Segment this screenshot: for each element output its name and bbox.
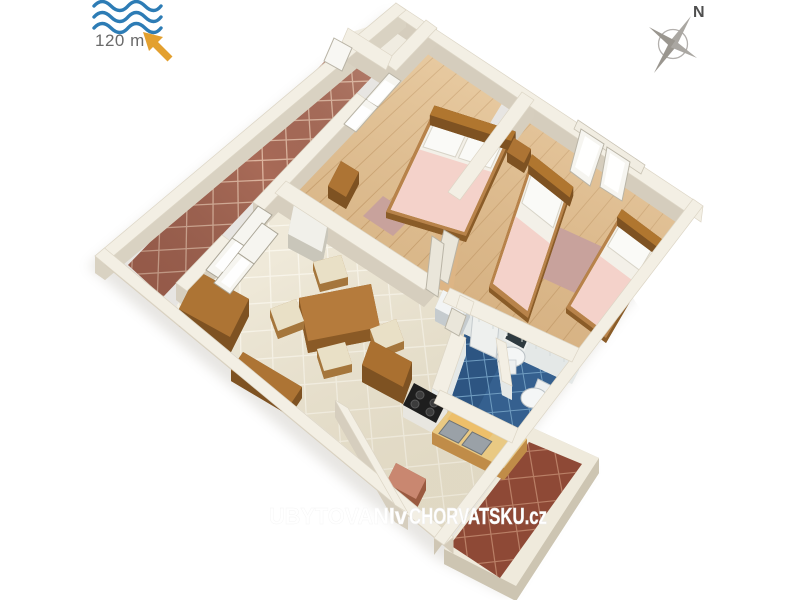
svg-text:120 m: 120 m bbox=[95, 31, 145, 50]
svg-text:CHORVATSKU.cz: CHORVATSKU.cz bbox=[409, 503, 547, 529]
svg-text:UBYTOVANIv: UBYTOVANIv bbox=[269, 503, 407, 529]
svg-text:N: N bbox=[693, 4, 705, 21]
